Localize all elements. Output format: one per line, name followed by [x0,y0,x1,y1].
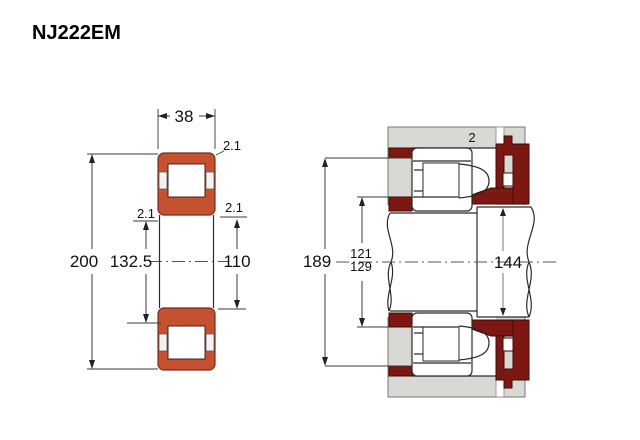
bore-110-label: 110 [223,252,250,271]
shaft-shoulder-top [389,197,412,211]
upper-ring-section [158,153,215,215]
chamfer-top-label: 2.1 [223,138,241,153]
page-title: NJ222EM [32,22,121,44]
shaft-shoulder-bottom [389,313,412,327]
page-background [0,0,640,440]
snap-ring-slot-bottom [496,380,504,397]
width-38-label: 38 [175,107,194,126]
snap-ring-bottom [503,338,513,351]
lower-cage-slit-right [206,334,214,351]
shaft-129-label: 129 [350,259,372,274]
rib-132-5-label: 132.5 [110,252,153,271]
od-200-label: 200 [70,252,98,271]
collar-144-label: 144 [494,253,522,272]
upper-roller [168,164,205,197]
chamfer-right-label: 2.1 [225,200,243,215]
upper-cage-slit-left [159,172,167,189]
chamfer-left-label: 2.1 [137,206,155,221]
snap-ring-slot-top [496,127,504,144]
groove-2-label: 2 [468,130,475,145]
lower-roller [168,326,205,359]
upper-cage-slit-right [206,172,214,189]
housing-shoulder-bottom [389,366,413,376]
housing-shoulder-top [389,148,413,158]
lower-ring-section [158,308,215,370]
snap-ring-top [503,173,513,186]
bearing-drawing-canvas: NJ222EM 38 [0,0,640,440]
housing-189-label: 189 [303,252,331,271]
lower-cage-slit-left [159,334,167,351]
